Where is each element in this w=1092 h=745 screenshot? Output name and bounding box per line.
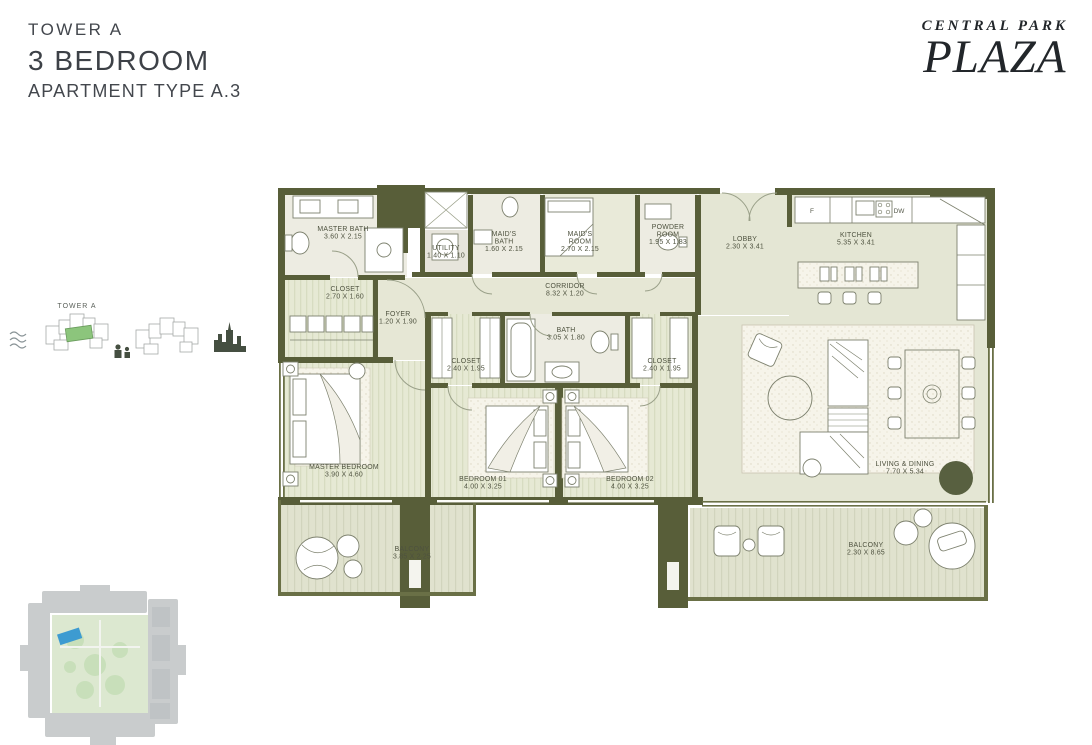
room-label-corridor: 8.32 X 1.20 xyxy=(546,291,584,298)
fridge-label: F xyxy=(810,208,814,215)
shower-stall xyxy=(425,192,467,228)
room-label-living-dining: 7.70 X 5.34 xyxy=(886,469,924,476)
dining-table xyxy=(888,350,975,438)
room-label-closet-master: CLOSET xyxy=(330,286,360,293)
room-label-master-bath: 3.60 X 2.15 xyxy=(324,234,362,241)
room-label-bedroom-01: BEDROOM 01 xyxy=(459,476,507,483)
room-label-bath: BATH xyxy=(557,327,576,334)
room-label-master-bath: MASTER BATH xyxy=(317,226,368,233)
dishwasher-label: DW xyxy=(894,208,906,215)
room-label-maids-bath: BATH xyxy=(495,239,514,246)
structural-column xyxy=(939,461,973,495)
room-label-balcony-right: BALCONY xyxy=(849,542,884,549)
room-label-living-dining: LIVING & DINING xyxy=(876,461,935,468)
room-label-powder-room: 1.95 X 1.83 xyxy=(649,239,687,246)
room-label-closet-bedroom01: CLOSET xyxy=(451,358,481,365)
room-label-balcony-right: 2.30 X 8.65 xyxy=(847,550,885,557)
room-label-utility: UTILITY xyxy=(432,245,460,252)
city-skyline-icon xyxy=(214,322,246,352)
room-label-closet-bedroom02: 2.40 X 1.95 xyxy=(643,366,681,373)
tower-locator: TOWER A xyxy=(10,303,246,358)
room-label-bedroom-02: BEDROOM 02 xyxy=(606,476,654,483)
room-label-maids-room: 2.70 X 2.15 xyxy=(561,246,599,253)
room-label-balcony-left: 3.85 X 2.25 xyxy=(393,554,431,561)
room-label-utility: 1.40 X 1.10 xyxy=(427,253,465,260)
room-label-balcony-left: BALCONY xyxy=(395,546,430,553)
floorplan-page: TOWER A 3 BEDROOM APARTMENT TYPE A.3 CEN… xyxy=(0,0,1092,745)
park-figures-icon xyxy=(115,344,131,358)
room-label-powder-room: ROOM xyxy=(657,232,679,239)
tower-b-footprint xyxy=(136,318,198,354)
room-label-maids-room: MAID'S xyxy=(568,231,593,238)
room-label-foyer: FOYER xyxy=(386,311,411,318)
room-label-maids-bath: MAID'S xyxy=(492,231,517,238)
room-label-closet-master: 2.70 X 1.60 xyxy=(326,294,364,301)
tower-a-footprint xyxy=(46,314,108,350)
room-label-kitchen: KITCHEN xyxy=(840,232,872,239)
room-label-closet-bedroom01: 2.40 X 1.95 xyxy=(447,366,485,373)
bedroom01-furniture xyxy=(468,390,557,487)
room-label-kitchen: 5.35 X 3.41 xyxy=(837,240,875,247)
room-label-lobby: LOBBY xyxy=(733,236,757,243)
bedroom02-furniture xyxy=(562,390,648,487)
room-label-closet-bedroom02: CLOSET xyxy=(647,358,677,365)
room-label-bath: 3.05 X 1.80 xyxy=(547,335,585,342)
room-label-powder-room: POWDER xyxy=(652,224,685,231)
room-label-maids-bath: 1.60 X 2.15 xyxy=(485,246,523,253)
room-label-bedroom-01: 4.00 X 3.25 xyxy=(464,484,502,491)
site-plan-minimap xyxy=(20,585,186,745)
floor-plan-canvas: F DW xyxy=(0,0,1092,745)
room-label-bedroom-02: 4.00 X 3.25 xyxy=(611,484,649,491)
room-label-corridor: CORRIDOR xyxy=(545,283,585,290)
room-label-lobby: 2.30 X 3.41 xyxy=(726,244,764,251)
room-label-master-bedroom: MASTER BEDROOM xyxy=(309,464,379,471)
room-label-master-bedroom: 3.90 X 4.60 xyxy=(325,472,363,479)
room-label-maids-room: ROOM xyxy=(569,239,591,246)
bedroom-windows xyxy=(300,500,654,502)
sea-waves-icon xyxy=(10,332,26,348)
room-label-foyer: 1.20 X 1.90 xyxy=(379,319,417,326)
locator-tower-a-label: TOWER A xyxy=(57,303,96,310)
